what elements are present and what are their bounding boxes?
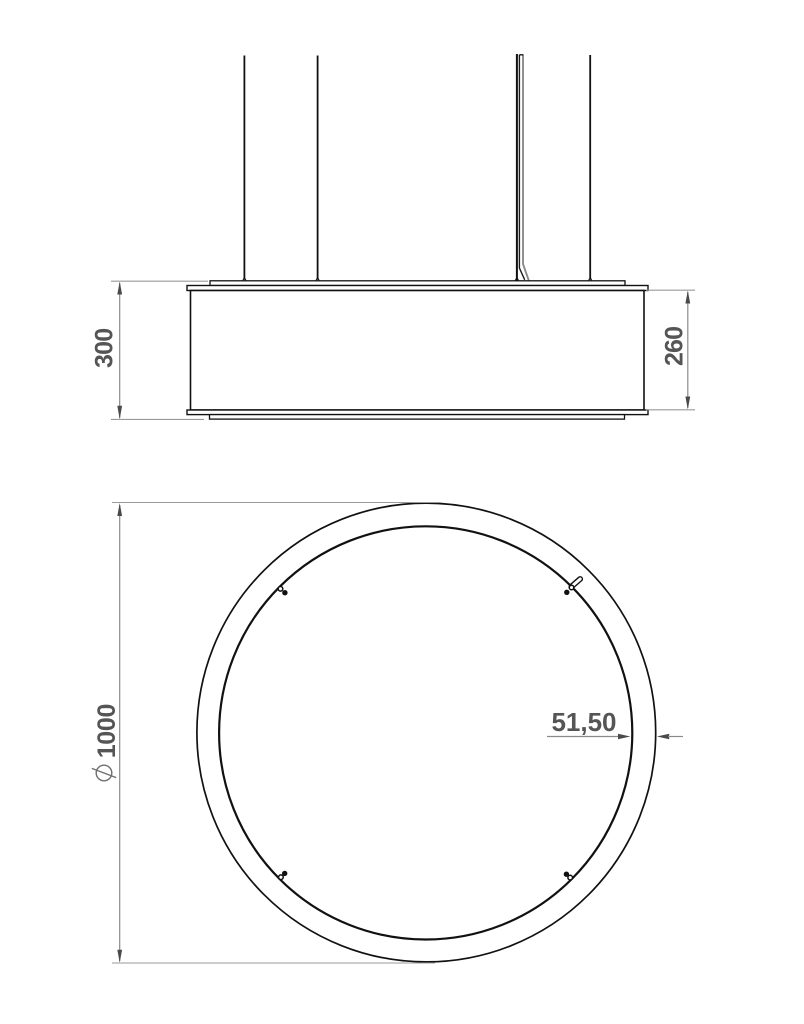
svg-text:260: 260 — [661, 327, 689, 366]
svg-text:300: 300 — [91, 329, 119, 368]
svg-text:1000: 1000 — [93, 704, 121, 758]
svg-text:51,50: 51,50 — [551, 707, 616, 737]
